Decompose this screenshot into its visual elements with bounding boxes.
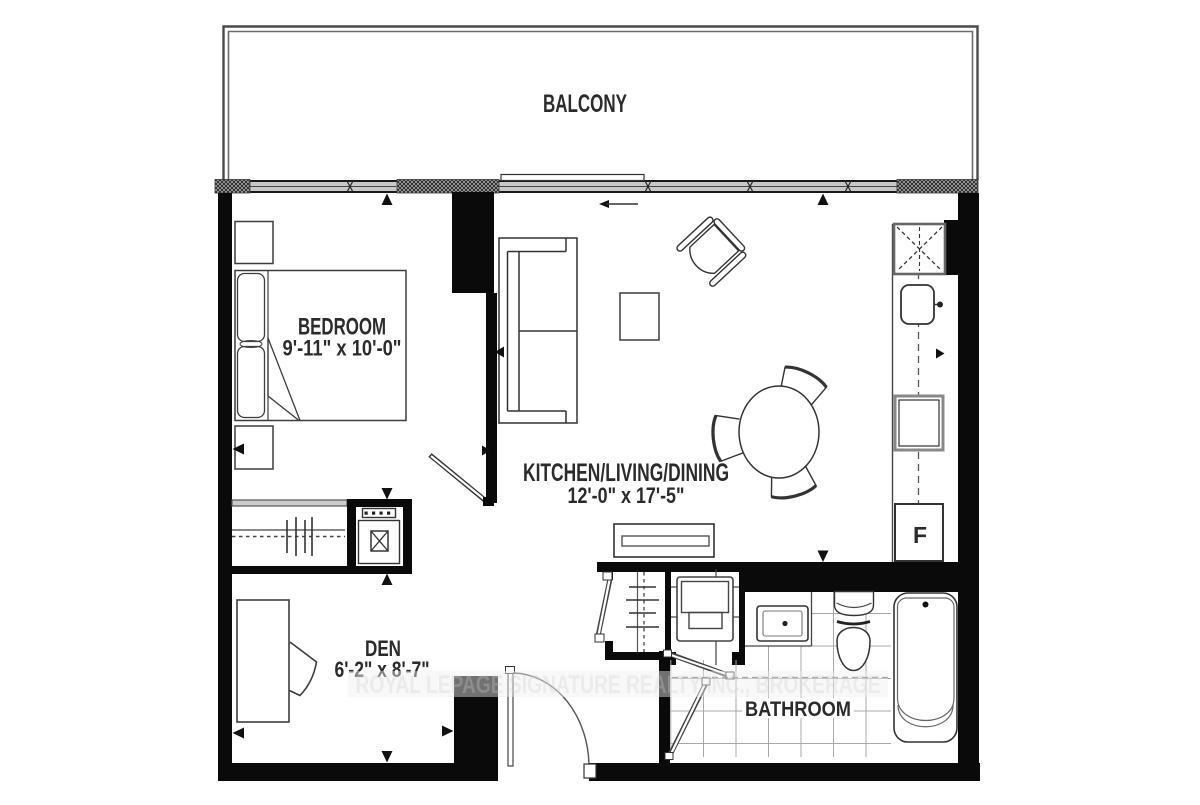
svg-text:ROYAL LEPAGE SIGNATURE REALTY: ROYAL LEPAGE SIGNATURE REALTY INC., BROK… — [356, 671, 881, 699]
svg-text:12'-0" x 17'-5": 12'-0" x 17'-5" — [568, 483, 685, 508]
svg-text:F: F — [913, 522, 927, 548]
svg-text:BATHROOM: BATHROOM — [745, 698, 851, 721]
svg-text:9'-11" x 10'-0": 9'-11" x 10'-0" — [283, 336, 402, 361]
svg-text:BALCONY: BALCONY — [543, 90, 627, 118]
